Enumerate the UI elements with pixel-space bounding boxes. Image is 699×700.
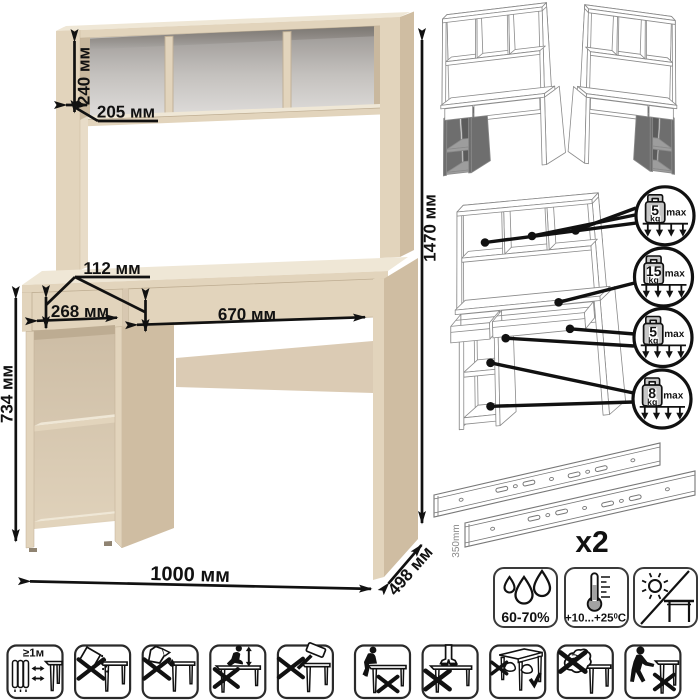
svg-text:kg: kg [650,214,660,224]
svg-text:670 мм: 670 мм [218,305,276,324]
svg-text:≥1м: ≥1м [23,648,44,660]
svg-text:kg: kg [649,275,659,285]
svg-text:max: max [664,329,684,340]
svg-text:350mm: 350mm [451,524,462,557]
svg-text:x2: x2 [575,526,608,559]
svg-text:+10...+250C: +10...+250C [565,612,626,625]
svg-text:kg: kg [647,397,657,407]
svg-text:kg: kg [648,335,658,345]
svg-text:268 мм: 268 мм [51,302,109,321]
svg-text:205 мм: 205 мм [97,103,155,122]
svg-text:1000 мм: 1000 мм [150,563,230,587]
svg-text:max: max [663,391,683,402]
svg-text:1470 мм: 1470 мм [420,194,439,262]
svg-text:112 мм: 112 мм [83,259,140,278]
svg-text:240 мм: 240 мм [74,47,93,105]
svg-text:60-70%: 60-70% [501,609,550,625]
svg-text:max: max [665,269,685,280]
svg-text:max: max [666,207,686,218]
svg-text:734 мм: 734 мм [0,365,16,423]
